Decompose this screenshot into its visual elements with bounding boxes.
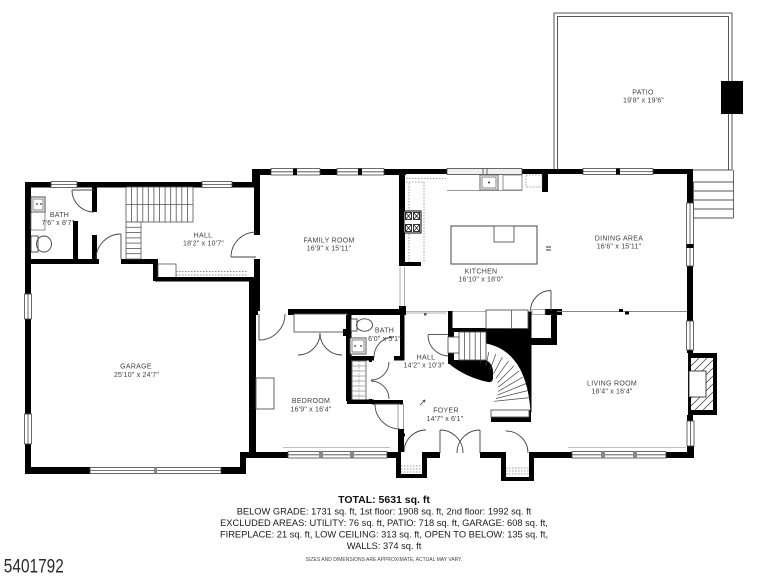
svg-text:FIREPLACE: 21 sq. ft, LOW CEIL: FIREPLACE: 21 sq. ft, LOW CEILING: 313 s… (220, 530, 548, 540)
svg-text:DINING AREA: DINING AREA (595, 236, 643, 243)
svg-text:KITCHEN: KITCHEN (465, 269, 498, 276)
svg-text:25'10" x 24'7": 25'10" x 24'7" (114, 372, 159, 379)
svg-text:16'10" x 18'0": 16'10" x 18'0" (458, 277, 503, 284)
svg-text:16'9" x 16'4": 16'9" x 16'4" (291, 407, 332, 414)
svg-text:HALL: HALL (194, 233, 213, 240)
svg-text:16'6" x 15'11": 16'6" x 15'11" (597, 244, 642, 251)
svg-text:PATIO: PATIO (632, 90, 654, 97)
svg-text:14'2" x 10'3": 14'2" x 10'3" (404, 363, 445, 370)
svg-text:BELOW GRADE: 1731 sq. ft, 1st: BELOW GRADE: 1731 sq. ft, 1st floor: 190… (237, 507, 532, 517)
svg-text:BEDROOM: BEDROOM (292, 398, 330, 405)
svg-text:16'9" x 15'11": 16'9" x 15'11" (307, 246, 352, 253)
svg-text:5401792: 5401792 (4, 557, 64, 576)
svg-text:14'7" x 6'1": 14'7" x 6'1" (427, 416, 464, 423)
svg-text:LIVING ROOM: LIVING ROOM (587, 381, 637, 388)
svg-text:FOYER: FOYER (433, 408, 459, 415)
svg-text:TOTAL: 5631 sq. ft: TOTAL: 5631 sq. ft (338, 494, 430, 506)
svg-text:6'0" x 5'1": 6'0" x 5'1" (368, 336, 401, 343)
svg-text:GARAGE: GARAGE (120, 364, 152, 371)
svg-text:7'6" x 8'7": 7'6" x 8'7" (42, 220, 75, 227)
svg-text:BATH: BATH (50, 212, 69, 219)
svg-text:19'8" x 19'6": 19'8" x 19'6" (623, 98, 664, 105)
svg-text:WALLS: 374 sq. ft: WALLS: 374 sq. ft (347, 541, 422, 551)
svg-text:FAMILY ROOM: FAMILY ROOM (303, 238, 354, 245)
svg-text:EXCLUDED AREAS: UTILITY: 76 sq: EXCLUDED AREAS: UTILITY: 76 sq. ft, PATI… (220, 518, 548, 528)
svg-text:SIZES AND DIMENSIONS ARE APPRO: SIZES AND DIMENSIONS ARE APPROXIMATE, AC… (306, 557, 463, 563)
svg-text:HALL: HALL (417, 355, 436, 362)
svg-text:18'2" x 10'7": 18'2" x 10'7" (183, 241, 224, 248)
svg-text:18'4" x 16'4": 18'4" x 16'4" (592, 389, 633, 396)
svg-text:BATH: BATH (375, 328, 394, 335)
